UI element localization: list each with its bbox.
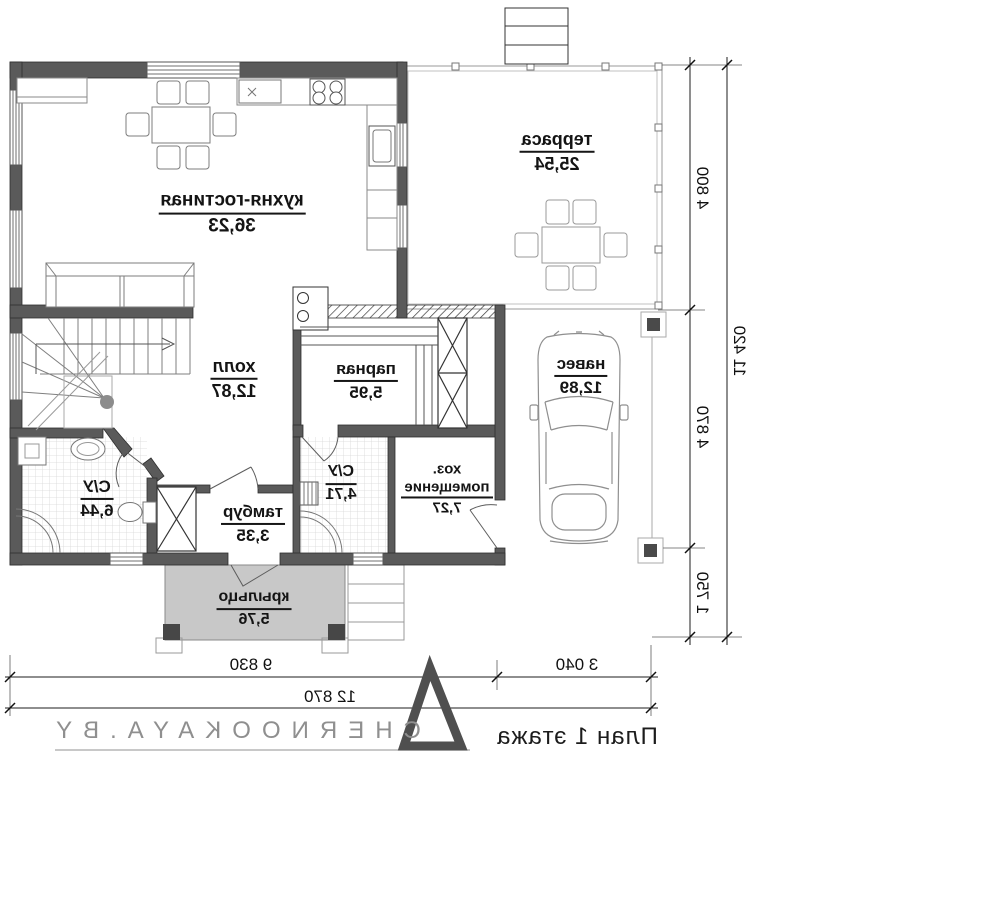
fridge-icon xyxy=(369,126,395,166)
room-label-vestibule: тамбур 3,35 xyxy=(221,502,285,546)
entry-steps xyxy=(348,565,404,640)
window-bottom-1 xyxy=(110,553,143,565)
floor-plan-sheet: кухня-гостиная 36,23 терраса 25,54 холл … xyxy=(0,0,1000,918)
washer-icon xyxy=(18,437,46,465)
dim-11420: 11 420 xyxy=(729,326,749,377)
dim-3040: 3 040 xyxy=(556,655,599,675)
door-vestibule-hall xyxy=(210,467,258,489)
carport xyxy=(530,312,666,563)
vent-shaft-sauna xyxy=(438,318,467,428)
window-left-2 xyxy=(10,210,22,288)
dim-4800: 4 800 xyxy=(692,167,712,210)
dim-9830: 9 830 xyxy=(230,655,273,675)
sink-oval-icon xyxy=(71,438,105,460)
sofa xyxy=(46,263,194,307)
window-bottom-2 xyxy=(353,553,383,565)
staircase xyxy=(22,318,190,430)
radiator-icon xyxy=(300,482,318,505)
room-label-bathroom-2: С/У 4,71 xyxy=(325,463,356,505)
room-label-porch: крыльцо 5,76 xyxy=(216,588,291,630)
floor-plan-drawing xyxy=(0,0,1000,918)
hatched-wall xyxy=(328,305,503,318)
toilet-icon xyxy=(118,502,156,523)
room-label-utility: хоз. помещение 7,27 xyxy=(401,460,493,517)
carport-post xyxy=(638,538,663,563)
dim-4870: 4 870 xyxy=(692,406,712,449)
sink-icon xyxy=(239,80,281,103)
vent-shaft-vestibule xyxy=(157,487,196,551)
stair-walkline xyxy=(36,338,174,374)
sauna-stove-icon xyxy=(293,287,328,330)
room-label-kitchen-living: кухня-гостиная 36,23 xyxy=(158,190,305,239)
stair-post xyxy=(100,395,114,409)
cooktop-icon xyxy=(310,79,345,105)
terrace-table-set xyxy=(515,200,627,290)
room-label-terrace: терраса 25,54 xyxy=(519,129,594,175)
room-label-sauna: парная 5,95 xyxy=(334,359,398,403)
room-label-carport: навес 12,89 xyxy=(555,354,608,398)
window-left-3 xyxy=(10,333,22,400)
brand-logo-text: CHERNOOKAYA.BY xyxy=(45,717,421,745)
dim-12870: 12 870 xyxy=(304,687,356,707)
dining-table-set xyxy=(126,81,236,169)
sheet-title: План 1 этажа xyxy=(496,723,658,751)
window-terrace-2 xyxy=(397,205,407,248)
chimney-steps xyxy=(505,8,568,64)
room-label-hall: холл 12,87 xyxy=(211,356,258,402)
terrace-deck xyxy=(403,63,662,309)
window-top xyxy=(147,62,240,78)
dim-1750: 1 750 xyxy=(692,572,712,615)
room-label-bathroom-1: С/У 6,44 xyxy=(80,477,113,521)
window-terrace-1 xyxy=(397,123,407,167)
carport-post xyxy=(641,312,666,337)
